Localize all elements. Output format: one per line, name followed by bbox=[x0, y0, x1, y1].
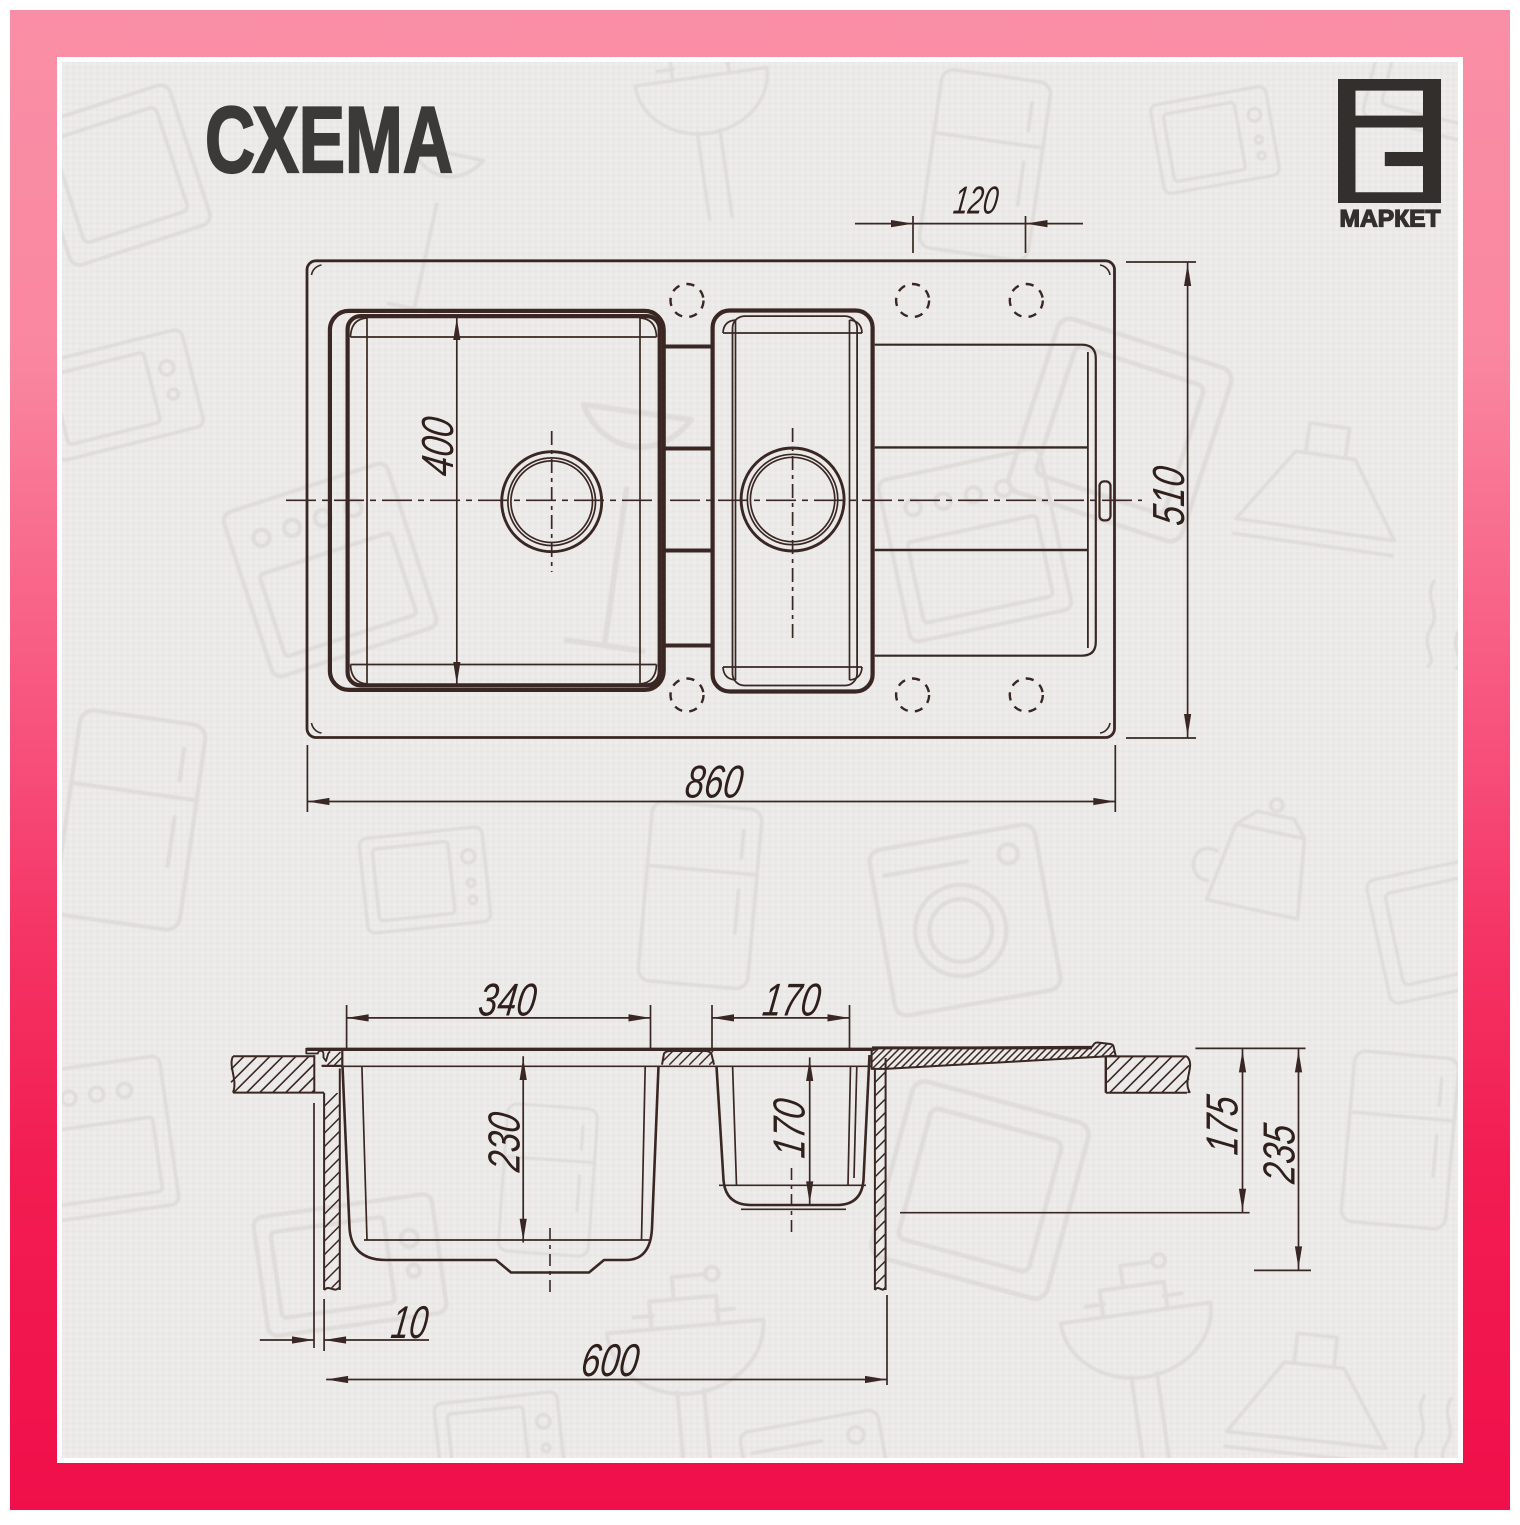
svg-text:340: 340 bbox=[476, 974, 540, 1026]
svg-text:235: 235 bbox=[1254, 1120, 1305, 1187]
svg-text:СХЕМА: СХЕМА bbox=[205, 87, 453, 192]
svg-text:МАРКЕТ: МАРКЕТ bbox=[1340, 206, 1441, 233]
svg-text:400: 400 bbox=[412, 414, 463, 479]
svg-text:120: 120 bbox=[951, 180, 1001, 223]
svg-text:175: 175 bbox=[1197, 1092, 1248, 1158]
svg-text:230: 230 bbox=[479, 1109, 530, 1175]
svg-text:510: 510 bbox=[1143, 463, 1194, 528]
svg-text:600: 600 bbox=[578, 1334, 642, 1386]
svg-text:170: 170 bbox=[764, 1095, 815, 1160]
svg-text:170: 170 bbox=[760, 974, 824, 1026]
svg-text:860: 860 bbox=[682, 756, 746, 808]
svg-text:10: 10 bbox=[388, 1296, 431, 1348]
